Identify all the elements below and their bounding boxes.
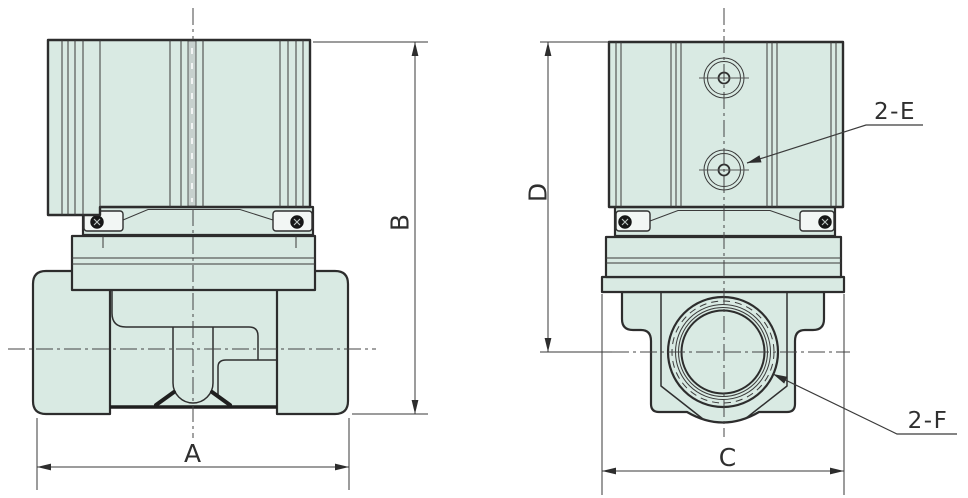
front-yoke [83,207,313,235]
side-yoke [615,207,835,236]
valve-dimension-drawing: A B [0,0,968,498]
dim-b-arrow-top [412,42,419,56]
dim-b-label: B [386,213,415,231]
dim-d-arrow-bottom [545,338,552,352]
side-solenoid-coil [609,42,843,207]
front-view: A B [8,8,428,490]
front-coil-housing [48,40,310,215]
side-view: D C 2-E 2-F [524,8,958,495]
dim-c-label: C [719,443,737,472]
dim-b-arrow-bottom [412,400,419,414]
front-body-left-port [33,271,110,414]
dim-a-label: A [184,439,202,468]
drawing-page: A B [0,0,968,498]
side-coil-housing [609,42,843,207]
dim-a-arrow-left [37,464,51,471]
dim-d-label: D [524,182,553,202]
callout-2f-label: 2-F [908,408,949,434]
front-valve-body [33,271,348,414]
dim-a-arrow-right [335,464,349,471]
callout-2e-label: 2-E [874,99,916,125]
side-body-top-band [602,277,844,292]
dim-d-arrow-top [545,42,552,56]
side-valve-body [602,274,844,423]
front-body-right-port [277,271,348,414]
front-solenoid-coil [48,40,310,215]
callout-2f: 2-F [773,374,957,434]
dimension-d: D [524,42,613,352]
dim-c-arrow-left [602,468,616,475]
dim-c-arrow-right [830,468,844,475]
